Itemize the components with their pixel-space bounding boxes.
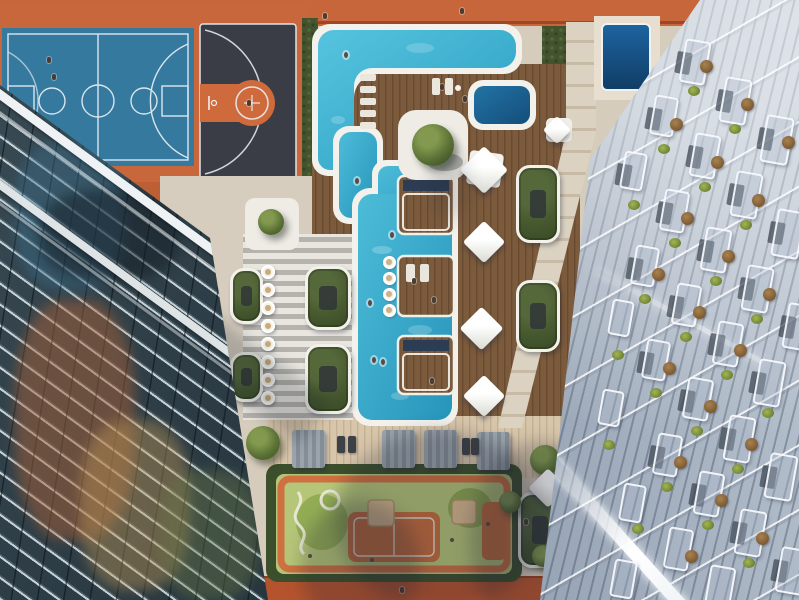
balcony-glass-railing <box>652 432 684 478</box>
balcony-umbrella-table <box>782 136 795 149</box>
balcony-plant <box>603 440 615 450</box>
balcony-glass-railing <box>619 150 648 191</box>
balcony-plant <box>732 464 744 474</box>
balcony-umbrella-table <box>663 362 676 375</box>
balcony-plant <box>612 350 624 360</box>
balcony-umbrella-table <box>681 212 694 225</box>
balcony-umbrella-table <box>756 532 769 545</box>
balcony-glass-railing <box>641 338 672 382</box>
balcony-umbrella-table <box>693 306 706 319</box>
balcony-umbrella-table <box>752 194 765 207</box>
balcony-glass-railing <box>630 244 661 288</box>
balcony-plant <box>751 314 763 324</box>
balcony-glass-railing <box>609 558 638 599</box>
balcony-plant <box>729 124 741 134</box>
balcony-umbrella-table <box>722 250 735 263</box>
balcony-umbrella-table <box>685 550 698 563</box>
balcony-plant <box>688 86 700 96</box>
balcony-objects-layer <box>0 0 799 600</box>
balcony-glass-railing <box>597 388 625 427</box>
balcony-glass-railing <box>763 452 799 502</box>
balcony-umbrella-table <box>745 438 758 451</box>
balcony-umbrella-table <box>704 400 717 413</box>
balcony-plant <box>762 408 774 418</box>
balcony-plant <box>743 558 755 568</box>
balcony-umbrella-table <box>711 156 724 169</box>
balcony-plant <box>680 332 692 342</box>
balcony-plant <box>699 182 711 192</box>
balcony-plant <box>691 426 703 436</box>
balcony-glass-railing <box>770 208 799 260</box>
balcony-plant <box>628 200 640 210</box>
balcony-glass-railing <box>752 358 787 408</box>
balcony-umbrella-table <box>674 456 687 469</box>
balcony-umbrella-table <box>734 344 747 357</box>
balcony-glass-railing <box>671 282 703 328</box>
balcony-glass-railing <box>774 546 799 596</box>
balcony-umbrella-table <box>741 98 754 111</box>
balcony-glass-railing <box>659 188 691 234</box>
balcony-plant <box>661 482 673 492</box>
balcony-plant <box>702 520 714 530</box>
balcony-umbrella-table <box>763 288 776 301</box>
balcony-plant <box>740 220 752 230</box>
balcony-glass-railing <box>682 376 715 422</box>
balcony-glass-railing <box>781 302 799 352</box>
balcony-umbrella-table <box>700 60 713 73</box>
balcony-glass-railing <box>607 298 635 337</box>
balcony-plant <box>632 524 644 534</box>
balcony-plant <box>710 276 722 286</box>
balcony-plant <box>721 370 733 380</box>
balcony-umbrella-table <box>670 118 683 131</box>
balcony-plant <box>650 388 662 398</box>
balcony-glass-railing <box>649 94 680 138</box>
balcony-glass-railing <box>703 564 736 600</box>
balcony-plant <box>669 238 681 248</box>
aerial-courtyard-render: Aerial render of a residential complex c… <box>0 0 799 600</box>
balcony-umbrella-table <box>715 494 728 507</box>
balcony-umbrella-table <box>652 268 665 281</box>
balcony-plant <box>658 144 670 154</box>
balcony-glass-railing <box>618 482 647 523</box>
balcony-glass-railing <box>663 526 695 572</box>
balcony-plant <box>639 294 651 304</box>
